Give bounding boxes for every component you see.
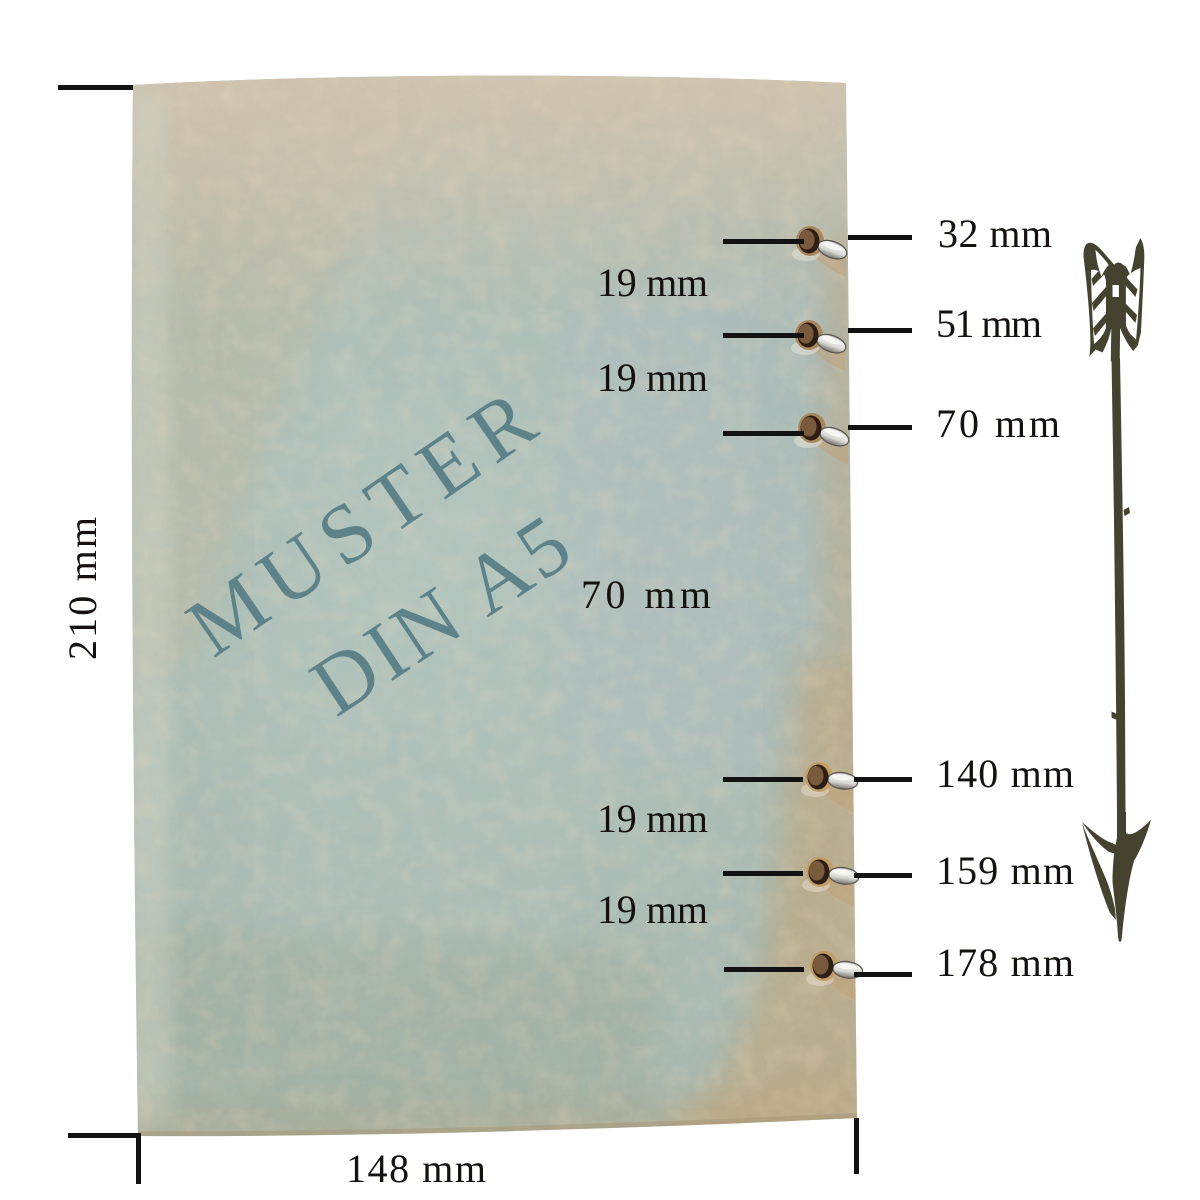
svg-text:19 mm: 19 mm: [597, 260, 708, 305]
svg-text:32 mm: 32 mm: [938, 211, 1052, 256]
svg-text:19 mm: 19 mm: [597, 355, 708, 400]
svg-text:178 mm: 178 mm: [936, 940, 1074, 985]
svg-text:159 mm: 159 mm: [936, 848, 1074, 893]
svg-text:140 mm: 140 mm: [936, 751, 1074, 796]
svg-text:148 mm: 148 mm: [346, 1146, 486, 1191]
svg-text:210 mm: 210 mm: [60, 517, 105, 660]
svg-text:19 mm: 19 mm: [597, 887, 708, 932]
svg-text:70 mm: 70 mm: [936, 401, 1060, 446]
svg-text:70 mm: 70 mm: [581, 572, 711, 617]
svg-text:19 mm: 19 mm: [597, 796, 708, 841]
svg-text:51 mm: 51 mm: [936, 301, 1042, 346]
